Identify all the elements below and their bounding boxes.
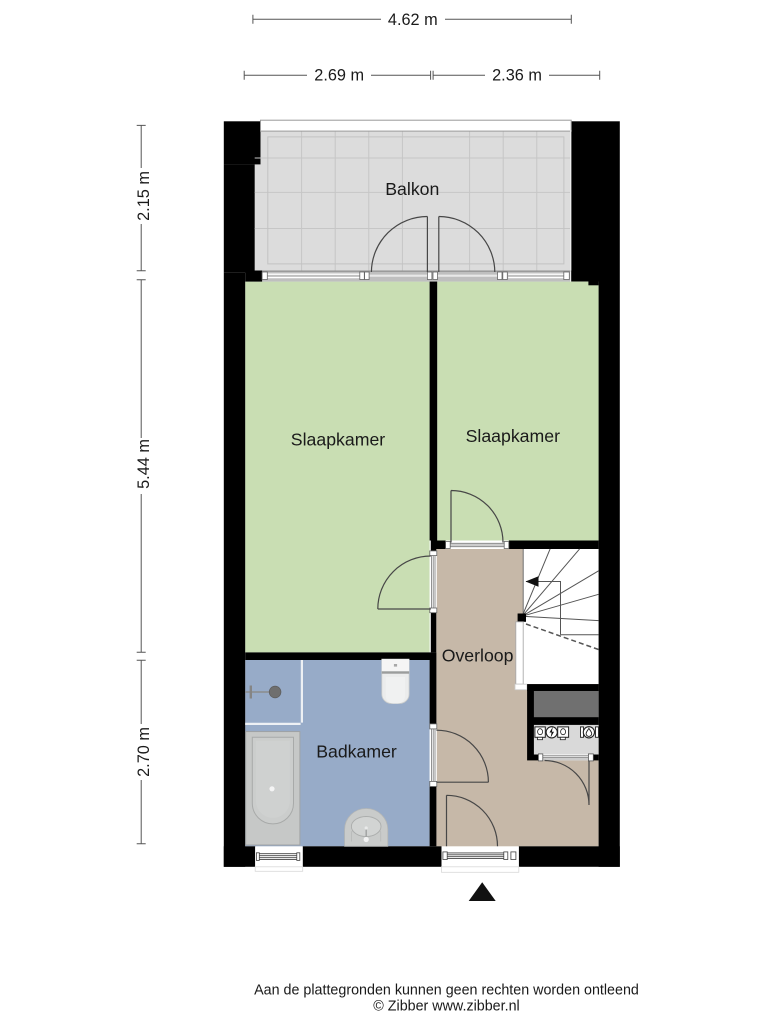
svg-text:2.70 m: 2.70 m [135,727,153,777]
svg-text:Overloop: Overloop [442,646,514,666]
svg-text:2.36 m: 2.36 m [492,67,542,85]
svg-text:Aan de plattegronden kunnen ge: Aan de plattegronden kunnen geen rechten… [254,983,639,999]
svg-text:4.62 m: 4.62 m [388,11,438,29]
svg-text:5.44 m: 5.44 m [135,439,153,489]
svg-text:Slaapkamer: Slaapkamer [291,430,385,450]
svg-text:Slaapkamer: Slaapkamer [466,426,560,446]
svg-text:Badkamer: Badkamer [316,742,397,762]
svg-text:© Zibber www.zibber.nl: © Zibber www.zibber.nl [373,999,519,1015]
svg-text:Balkon: Balkon [385,179,439,199]
svg-text:2.69 m: 2.69 m [314,67,364,85]
svg-text:2.15 m: 2.15 m [135,171,153,221]
